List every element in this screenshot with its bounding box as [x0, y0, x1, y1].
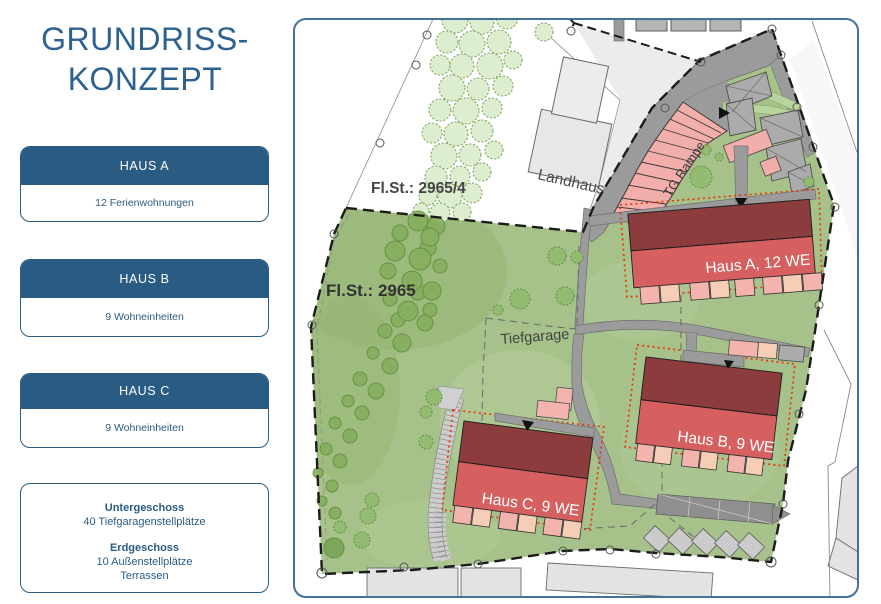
svg-text:Fl.St.: 2965/4: Fl.St.: 2965/4 — [371, 180, 466, 197]
svg-text:Fl.St.: 2965: Fl.St.: 2965 — [326, 281, 416, 300]
